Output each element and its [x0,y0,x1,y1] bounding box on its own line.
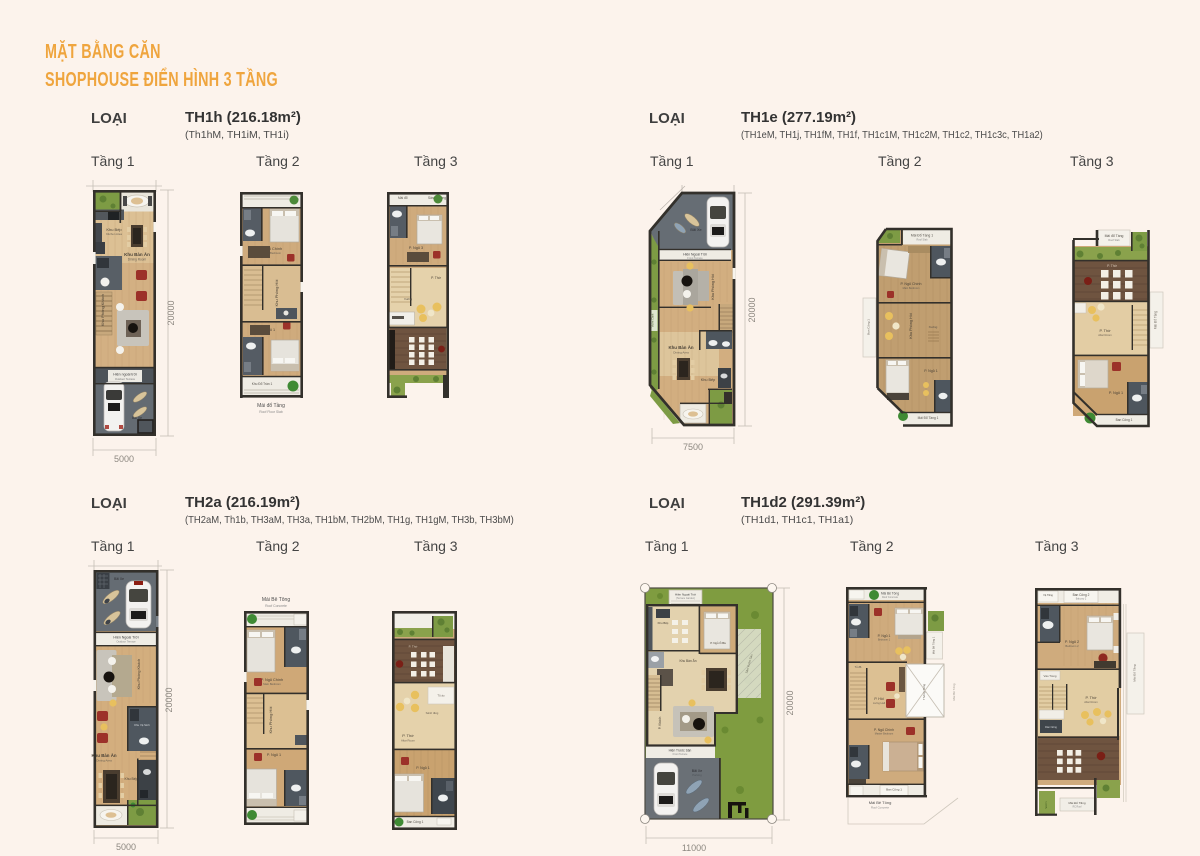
svg-text:Outdoor Terrace: Outdoor Terrace [116,639,136,643]
svg-text:Hiên Ngoài Trời: Hiên Ngoài Trời [675,593,696,597]
svg-text:Mái Đổ Tầng: Mái Đổ Tầng [1133,664,1137,681]
svg-text:Vệ Tầng: Vệ Tầng [1043,593,1053,597]
svg-text:P. Ngủ 1: P. Ngủ 1 [1109,391,1123,395]
svg-text:Mái Bê Tông: Mái Bê Tông [881,592,899,596]
svg-text:Sảnh tầng: Sảnh tầng [426,711,439,715]
svg-text:7500: 7500 [683,442,703,452]
svg-text:5000: 5000 [114,454,134,464]
svg-text:P. Ngủ 3: P. Ngủ 3 [409,246,423,250]
svg-text:P. Thờ: P. Thờ [1099,329,1111,333]
svg-text:Living Hall: Living Hall [873,701,885,705]
svg-text:Altar Room: Altar Room [401,738,416,742]
svg-text:Roof Slab: Roof Slab [1108,238,1120,242]
svg-text:Hiên ngoài trời: Hiên ngoài trời [113,373,137,377]
svg-text:P. Ngủ Chính: P. Ngủ Chính [261,678,283,682]
svg-text:Khu Phòng Khách: Khu Phòng Khách [100,294,105,326]
svg-text:Hiên Ngoài Trời: Hiên Ngoài Trời [113,636,138,640]
svg-text:Roof Floor Slab: Roof Floor Slab [259,410,283,414]
svg-text:11000: 11000 [682,843,706,853]
svg-text:Khu Phòng Hồi: Khu Phòng Hồi [268,706,273,733]
svg-text:Bãi Xe: Bãi Xe [690,228,701,232]
svg-text:Front Terrace: Front Terrace [673,753,688,756]
svg-text:Bedroom 2: Bedroom 2 [1065,644,1079,648]
svg-text:P. Ngủ 1: P. Ngủ 1 [924,369,938,373]
svg-text:Xuống: Xuống [929,325,938,329]
svg-text:Mái Đổ Tầng 1: Mái Đổ Tầng 1 [911,234,933,238]
svg-text:Khu Vệ Sinh: Khu Vệ Sinh [134,723,150,727]
svg-text:P. Thờ: P. Thờ [1085,696,1097,700]
svg-text:Mái Bê Tông: Mái Bê Tông [869,800,892,805]
svg-text:Front Terrace: Front Terrace [687,256,703,260]
svg-text:Parking: Parking [692,773,702,777]
svg-text:P. Khách: P. Khách [658,717,662,730]
svg-text:Khu Bàn Ăn: Khu Bàn Ăn [679,659,696,663]
svg-text:Dining Area: Dining Area [96,759,112,763]
svg-text:Bãi Xe: Bãi Xe [114,577,124,581]
svg-text:20000: 20000 [166,300,176,325]
svg-text:Mái Bê Tông: Mái Bê Tông [952,683,956,700]
svg-text:Xuống: Xuống [404,297,413,301]
svg-text:Dining Area: Dining Area [673,351,689,355]
svg-text:Mái đổ Tầng: Mái đổ Tầng [257,402,285,409]
svg-text:Kitchen Area: Kitchen Area [106,232,122,236]
svg-text:Khu Bàn Ăn: Khu Bàn Ăn [124,251,150,257]
svg-text:Altar Room: Altar Room [1084,700,1098,704]
svg-text:Khu Đổ Trần 1: Khu Đổ Trần 1 [252,382,273,386]
svg-text:Khu Phòng Hồi: Khu Phòng Hồi [274,279,279,306]
svg-text:Tủ áo: Tủ áo [437,694,445,698]
svg-text:Tủ đồ: Tủ đồ [855,665,862,669]
svg-text:Khu Bếp: Khu Bếp [124,777,137,781]
svg-text:(Terrace Garden): (Terrace Garden) [676,597,695,600]
svg-text:Khu Bếp: Khu Bếp [701,378,716,382]
svg-text:Main Bedroom: Main Bedroom [263,682,281,686]
svg-text:Mái đổ: Mái đổ [398,196,408,200]
svg-text:P. Ngủ 1: P. Ngủ 1 [878,634,891,638]
svg-text:P. Ngủ 1: P. Ngủ 1 [267,753,281,757]
svg-text:Mái đổ Tầng: Mái đổ Tầng [1105,234,1124,238]
svg-text:Dining Room: Dining Room [128,258,147,262]
svg-text:Thông Tầng: Thông Tầng [922,684,926,700]
svg-text:20000: 20000 [164,687,174,712]
svg-text:Khu Phòng Hồi: Khu Phòng Hồi [909,313,913,339]
svg-text:P. Thờ: P. Thờ [431,276,442,280]
svg-text:5000: 5000 [116,842,136,852]
svg-text:Roof Concrete: Roof Concrete [265,604,287,608]
svg-text:Master Bedroom: Master Bedroom [875,733,893,736]
svg-text:Altar Room: Altar Room [1098,333,1112,337]
svg-text:Ban Công 1: Ban Công 1 [886,788,902,792]
svg-text:RC Roof: RC Roof [1073,807,1082,809]
svg-text:Roof Concrete: Roof Concrete [871,806,889,810]
svg-text:Ban Công 1: Ban Công 1 [1116,418,1133,422]
svg-text:Main Bedroom: Main Bedroom [903,286,920,290]
svg-text:Vườn: Vườn [1044,801,1048,809]
svg-text:P. Ngủ 2: P. Ngủ 2 [1065,640,1079,644]
svg-text:P. Ngủ Ô.Bà: P. Ngủ Ô.Bà [710,640,726,645]
svg-text:20000: 20000 [785,690,795,715]
svg-text:Roof Concrete: Roof Concrete [882,596,899,599]
svg-text:Mái Bê Tông: Mái Bê Tông [262,597,290,603]
svg-text:Khu Phòng Khách: Khu Phòng Khách [137,659,141,690]
svg-text:P. Thờ: P. Thờ [409,645,418,649]
svg-text:20000: 20000 [747,297,757,322]
svg-text:P. Thờ: P. Thờ [402,733,414,738]
svg-text:Mái Đổ Tầng: Mái Đổ Tầng [1068,801,1085,805]
svg-text:Khu Bàn Ăn: Khu Bàn Ăn [668,345,693,350]
svg-text:Balcony 2: Balcony 2 [1076,598,1087,601]
svg-text:Ban Công 2: Ban Công 2 [1073,593,1090,597]
svg-text:P. Ngủ 1: P. Ngủ 1 [416,766,430,770]
svg-text:P. Hồi: P. Hồi [874,697,884,701]
svg-text:Outdoor Terrace: Outdoor Terrace [115,377,136,381]
svg-text:Vào Trong: Vào Trong [1044,674,1057,678]
svg-text:Ban Công 1: Ban Công 1 [407,820,424,824]
svg-text:P. Ngủ Chính: P. Ngủ Chính [874,728,894,732]
svg-text:Mái Đổ Tầng 1: Mái Đổ Tầng 1 [918,416,939,420]
svg-text:Mái Bê Tông 1: Mái Bê Tông 1 [932,636,936,654]
svg-text:Mái Đổ Tầng: Mái Đổ Tầng [1154,311,1158,329]
svg-text:Khu Bếp: Khu Bếp [658,621,669,625]
svg-text:Dàn Nóng: Dàn Nóng [1045,725,1057,729]
svg-text:Ban Công 1: Ban Công 1 [867,319,871,335]
svg-text:P. Thờ: P. Thờ [1107,264,1118,268]
svg-text:Bedroom 1: Bedroom 1 [878,639,891,642]
svg-text:Khu Phòng Hồi: Khu Phòng Hồi [711,274,715,300]
svg-text:Hiên Trước Sân: Hiên Trước Sân [669,749,692,753]
svg-text:Roof Slab: Roof Slab [917,238,929,241]
svg-text:P. Ngủ Chính: P. Ngủ Chính [900,282,921,286]
